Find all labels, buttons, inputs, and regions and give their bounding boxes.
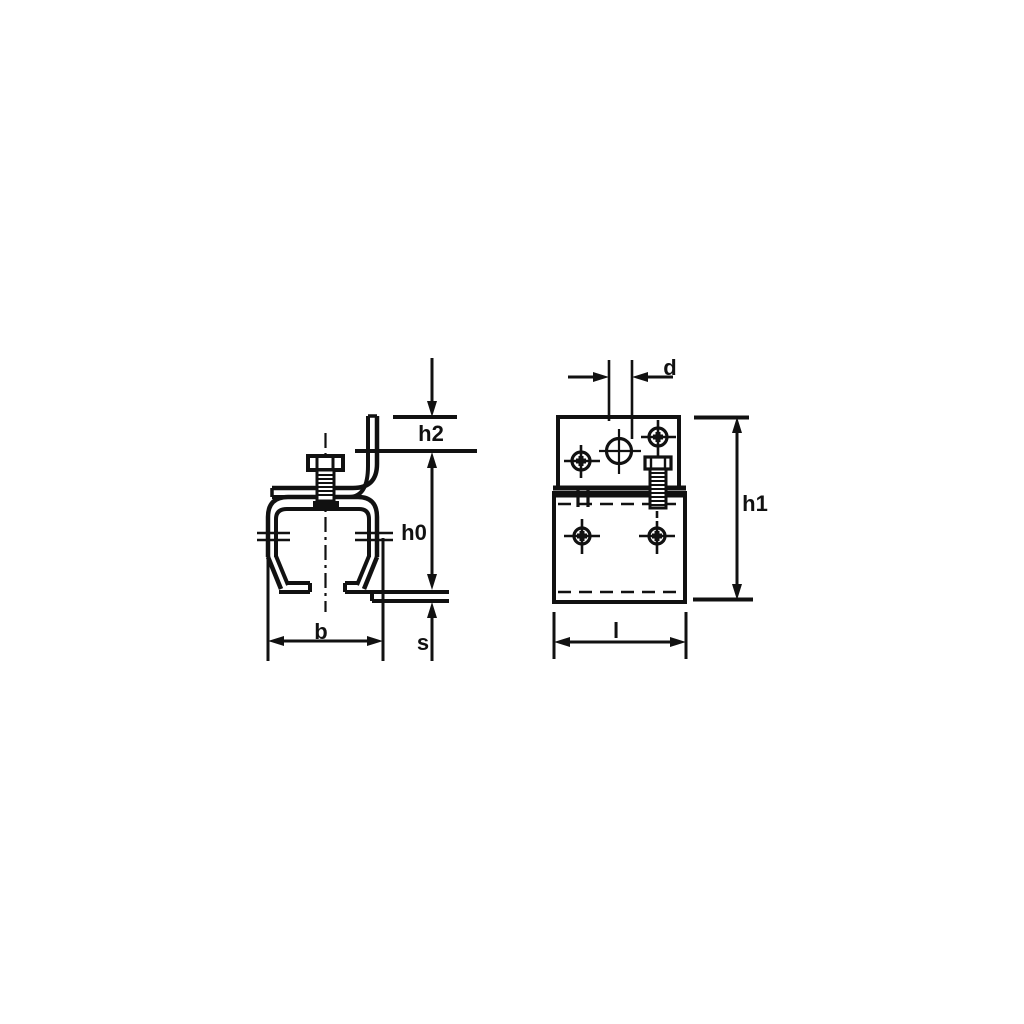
arrowhead bbox=[427, 452, 437, 468]
arrowhead bbox=[427, 401, 437, 417]
s-label: s bbox=[417, 630, 429, 655]
bracket-front-view: d h1 l bbox=[553, 355, 768, 659]
b-label: b bbox=[314, 619, 327, 644]
dimension-l: l bbox=[554, 612, 686, 659]
dimension-h0: h0 bbox=[401, 452, 437, 590]
bolt-head bbox=[308, 456, 343, 470]
hanger-bolt-side bbox=[308, 456, 343, 510]
dimension-h1: h1 bbox=[693, 417, 768, 600]
arrowhead bbox=[268, 636, 284, 646]
bolt-nut bbox=[313, 501, 339, 510]
bolt-threads bbox=[650, 473, 666, 505]
h0-label: h0 bbox=[401, 520, 427, 545]
technical-drawing-canvas: h2 h0 s b bbox=[0, 0, 1024, 1024]
rail-profile-side-view: h2 h0 s b bbox=[257, 358, 477, 661]
l-label: l bbox=[613, 618, 619, 643]
d-label: d bbox=[663, 355, 676, 380]
arrowhead bbox=[632, 372, 648, 382]
arrowhead bbox=[427, 574, 437, 590]
hanger-bolt-front bbox=[645, 457, 671, 508]
bolt-flange bbox=[645, 457, 671, 469]
dimension-s: s bbox=[417, 602, 437, 661]
arrowhead bbox=[593, 372, 609, 382]
rail-bracket-technical-drawing: h2 h0 s b bbox=[0, 0, 1024, 1024]
rail-channel-profile bbox=[257, 497, 449, 601]
dimension-h2: h2 bbox=[355, 358, 477, 451]
arrowhead bbox=[554, 637, 570, 647]
h1-label: h1 bbox=[742, 491, 768, 516]
arrowhead bbox=[427, 602, 437, 618]
arrowhead bbox=[367, 636, 383, 646]
h2-label: h2 bbox=[418, 421, 444, 446]
arrowhead bbox=[670, 637, 686, 647]
rail-bottom-thickness-lines bbox=[345, 592, 449, 601]
